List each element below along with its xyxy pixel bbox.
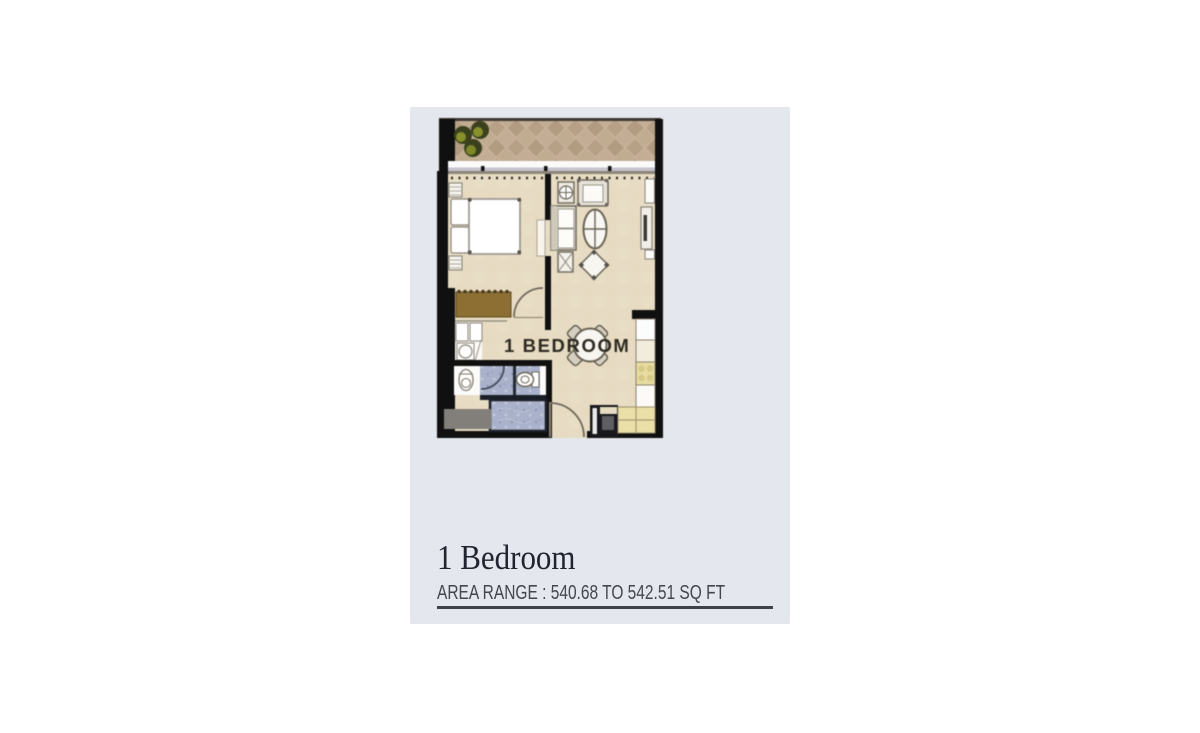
svg-text:1 BEDROOM: 1 BEDROOM — [504, 335, 630, 356]
